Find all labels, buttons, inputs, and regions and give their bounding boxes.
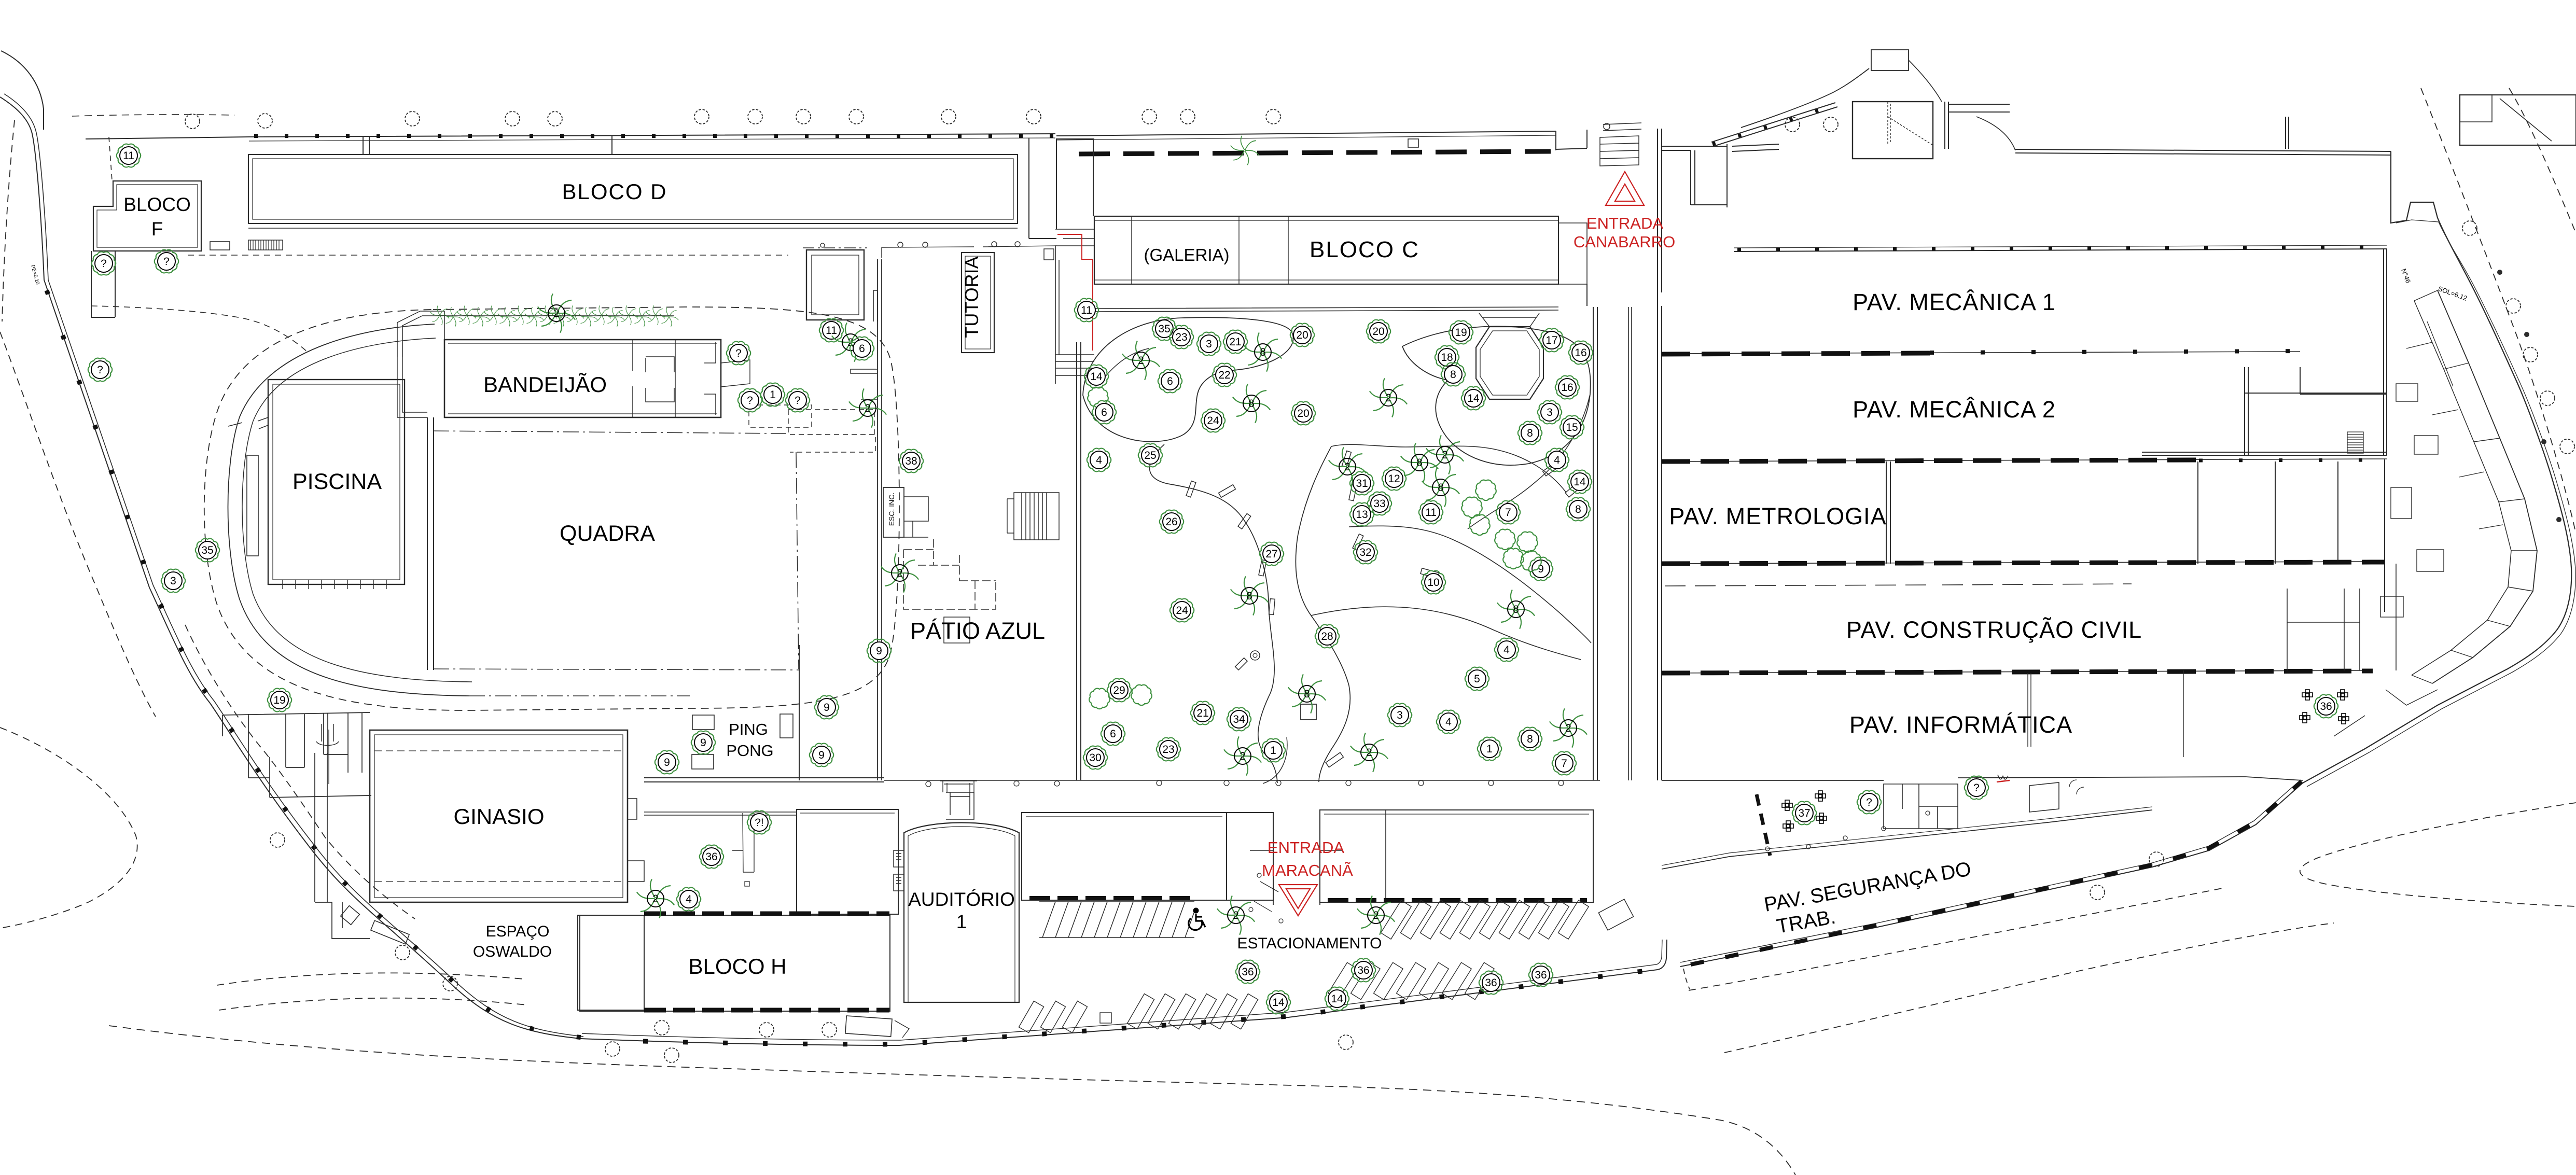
svg-text:2: 2 bbox=[1373, 910, 1379, 921]
svg-text:14: 14 bbox=[1574, 476, 1586, 488]
svg-text:32: 32 bbox=[1359, 547, 1371, 558]
svg-text:8: 8 bbox=[1513, 604, 1519, 616]
svg-text:9: 9 bbox=[824, 702, 830, 714]
svg-text:30: 30 bbox=[1089, 752, 1101, 764]
svg-text:2: 2 bbox=[865, 402, 871, 414]
svg-text:3: 3 bbox=[1397, 709, 1403, 721]
svg-text:3: 3 bbox=[1547, 407, 1553, 418]
svg-text:8: 8 bbox=[1450, 369, 1456, 381]
svg-text:2: 2 bbox=[553, 307, 560, 319]
svg-text:?: ? bbox=[97, 364, 103, 376]
svg-text:?: ? bbox=[1866, 796, 1872, 808]
svg-text:11: 11 bbox=[1081, 304, 1092, 316]
svg-text:12: 12 bbox=[1388, 473, 1400, 485]
svg-text:1: 1 bbox=[956, 911, 967, 932]
svg-text:ENTRADA: ENTRADA bbox=[1268, 838, 1344, 857]
svg-text:8: 8 bbox=[1527, 427, 1533, 439]
svg-text:38: 38 bbox=[905, 455, 917, 467]
svg-text:2: 2 bbox=[1385, 392, 1391, 404]
svg-text:10: 10 bbox=[1427, 577, 1439, 589]
svg-text:36: 36 bbox=[705, 851, 717, 863]
svg-text:37: 37 bbox=[1798, 807, 1810, 819]
svg-text:23: 23 bbox=[1175, 331, 1187, 343]
svg-text:MARACANÃ: MARACANÃ bbox=[1262, 861, 1353, 879]
svg-text:19: 19 bbox=[273, 694, 285, 706]
svg-text:?: ? bbox=[1973, 782, 1980, 794]
svg-text:14: 14 bbox=[1090, 371, 1103, 383]
svg-text:?: ? bbox=[163, 256, 170, 268]
svg-text:2: 2 bbox=[897, 567, 903, 579]
svg-text:9: 9 bbox=[664, 757, 670, 768]
svg-text:2: 2 bbox=[1233, 910, 1239, 921]
svg-text:27: 27 bbox=[1265, 548, 1277, 560]
svg-text:36: 36 bbox=[1242, 966, 1254, 978]
svg-text:24: 24 bbox=[1207, 415, 1219, 427]
svg-text:36: 36 bbox=[2320, 701, 2332, 712]
svg-text:4: 4 bbox=[1096, 454, 1102, 466]
svg-text:26: 26 bbox=[1165, 516, 1177, 528]
svg-text:?: ? bbox=[795, 395, 801, 407]
svg-text:2: 2 bbox=[652, 893, 659, 905]
svg-text:AUDITÓRIO: AUDITÓRIO bbox=[908, 889, 1015, 910]
svg-text:PÁTIO AZUL: PÁTIO AZUL bbox=[910, 618, 1045, 644]
svg-text:ENTRADA: ENTRADA bbox=[1586, 214, 1663, 232]
svg-text:25: 25 bbox=[1144, 450, 1156, 461]
svg-text:PAV. CONSTRUÇÃO CIVIL: PAV. CONSTRUÇÃO CIVIL bbox=[1846, 617, 2142, 643]
svg-text:?!: ?! bbox=[755, 817, 764, 829]
svg-text:BLOCO H: BLOCO H bbox=[688, 954, 786, 978]
svg-text:F: F bbox=[151, 218, 163, 240]
svg-text:PAV. METROLOGIA: PAV. METROLOGIA bbox=[1669, 503, 1886, 529]
svg-text:(GALERIA): (GALERIA) bbox=[1144, 245, 1229, 264]
svg-text:6: 6 bbox=[1101, 407, 1107, 418]
svg-text:35: 35 bbox=[201, 544, 213, 556]
svg-text:23: 23 bbox=[1162, 744, 1174, 756]
svg-text:OSWALDO: OSWALDO bbox=[473, 943, 552, 960]
svg-text:3: 3 bbox=[1206, 338, 1212, 350]
svg-text:18: 18 bbox=[1441, 352, 1453, 363]
svg-text:2: 2 bbox=[1366, 747, 1372, 759]
svg-text:GINASIO: GINASIO bbox=[453, 804, 544, 829]
svg-text:PONG: PONG bbox=[726, 742, 773, 760]
svg-text:21: 21 bbox=[1229, 336, 1241, 348]
svg-text:?: ? bbox=[101, 258, 107, 270]
svg-text:2: 2 bbox=[1442, 449, 1448, 461]
svg-text:2: 2 bbox=[1138, 355, 1144, 367]
svg-text:TUTORIA: TUTORIA bbox=[961, 256, 982, 338]
svg-text:PAV. MECÂNICA 1: PAV. MECÂNICA 1 bbox=[1853, 289, 2056, 315]
svg-text:8: 8 bbox=[1248, 398, 1255, 410]
svg-text:5: 5 bbox=[1474, 673, 1480, 685]
svg-text:16: 16 bbox=[1561, 382, 1573, 394]
svg-text:4: 4 bbox=[686, 893, 692, 905]
svg-text:7: 7 bbox=[1561, 758, 1567, 770]
svg-text:2: 2 bbox=[1240, 750, 1246, 762]
svg-text:8: 8 bbox=[1246, 590, 1252, 602]
svg-text:BLOCO D: BLOCO D bbox=[562, 179, 667, 204]
svg-text:29: 29 bbox=[1113, 684, 1125, 696]
svg-text:BLOCO C: BLOCO C bbox=[1310, 237, 1419, 262]
svg-text:33: 33 bbox=[1373, 498, 1385, 510]
svg-text:11: 11 bbox=[1425, 507, 1437, 519]
svg-text:35: 35 bbox=[1158, 323, 1170, 335]
svg-text:14: 14 bbox=[1467, 393, 1480, 404]
svg-text:17: 17 bbox=[1545, 334, 1557, 346]
svg-text:14: 14 bbox=[1272, 997, 1285, 1009]
svg-text:8: 8 bbox=[1438, 482, 1444, 494]
svg-text:9: 9 bbox=[876, 645, 882, 657]
svg-text:4: 4 bbox=[1554, 454, 1560, 466]
svg-text:11: 11 bbox=[826, 325, 837, 337]
svg-text:11: 11 bbox=[123, 150, 134, 162]
svg-text:31: 31 bbox=[1356, 478, 1368, 489]
svg-text:36: 36 bbox=[1485, 977, 1497, 989]
svg-text:8: 8 bbox=[1260, 346, 1266, 358]
svg-text:8: 8 bbox=[1575, 503, 1581, 515]
svg-text:24: 24 bbox=[1176, 605, 1188, 617]
svg-text:7: 7 bbox=[1505, 507, 1511, 519]
svg-text:1: 1 bbox=[1270, 745, 1276, 757]
svg-text:QUADRA: QUADRA bbox=[560, 521, 655, 546]
svg-text:15: 15 bbox=[1566, 422, 1578, 433]
svg-text:CANABARRO: CANABARRO bbox=[1574, 233, 1675, 251]
svg-text:19: 19 bbox=[1455, 327, 1467, 339]
svg-text:8: 8 bbox=[1527, 733, 1533, 745]
svg-text:3: 3 bbox=[170, 575, 176, 587]
svg-text:PING: PING bbox=[729, 720, 768, 738]
svg-text:20: 20 bbox=[1297, 408, 1309, 419]
svg-text:16: 16 bbox=[1575, 347, 1586, 359]
svg-text:36: 36 bbox=[1357, 964, 1369, 976]
svg-text:28: 28 bbox=[1321, 631, 1333, 642]
svg-text:1: 1 bbox=[1486, 743, 1493, 755]
svg-text:PAV. MECÂNICA 2: PAV. MECÂNICA 2 bbox=[1853, 396, 2056, 423]
svg-text:20: 20 bbox=[1372, 326, 1384, 338]
svg-text:6: 6 bbox=[1167, 375, 1173, 387]
svg-text:6: 6 bbox=[1110, 728, 1116, 740]
svg-text:BANDEIJÃO: BANDEIJÃO bbox=[483, 372, 607, 397]
svg-text:PAV. INFORMÁTICA: PAV. INFORMÁTICA bbox=[1849, 711, 2072, 738]
svg-text:9: 9 bbox=[818, 749, 825, 761]
svg-text:34: 34 bbox=[1233, 714, 1245, 725]
svg-text:22: 22 bbox=[1218, 369, 1230, 381]
svg-text:2: 2 bbox=[1565, 722, 1571, 734]
svg-text:21: 21 bbox=[1196, 707, 1208, 719]
svg-text:BLOCO: BLOCO bbox=[123, 194, 191, 215]
svg-text:36: 36 bbox=[1535, 969, 1547, 981]
svg-text:ESPAÇO: ESPAÇO bbox=[486, 923, 550, 940]
svg-text:ESTACIONAMENTO: ESTACIONAMENTO bbox=[1237, 935, 1382, 952]
svg-text:ESC. INC.: ESC. INC. bbox=[887, 493, 896, 526]
svg-text:13: 13 bbox=[1356, 509, 1368, 521]
svg-text:2: 2 bbox=[1344, 461, 1350, 473]
svg-text:8: 8 bbox=[1304, 688, 1310, 700]
svg-text:20: 20 bbox=[1296, 329, 1308, 341]
svg-text:4: 4 bbox=[1503, 644, 1510, 656]
svg-text:9: 9 bbox=[700, 737, 706, 749]
svg-text:6: 6 bbox=[859, 343, 865, 355]
svg-text:?: ? bbox=[735, 347, 742, 359]
svg-text:8: 8 bbox=[1416, 457, 1423, 469]
svg-text:PISCINA: PISCINA bbox=[293, 469, 382, 494]
svg-text:4: 4 bbox=[1445, 716, 1452, 728]
svg-text:1: 1 bbox=[770, 389, 776, 401]
svg-text:14: 14 bbox=[1331, 993, 1343, 1005]
svg-text:?: ? bbox=[747, 395, 753, 407]
